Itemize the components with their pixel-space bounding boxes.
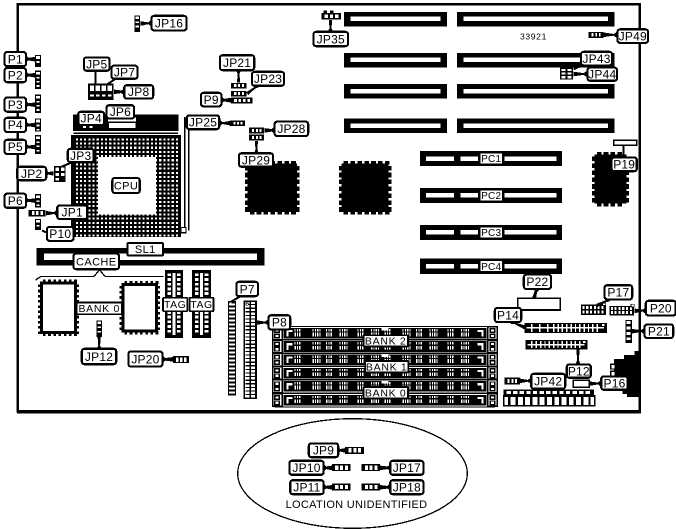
svg-text:JP21: JP21	[223, 56, 251, 70]
svg-text:TAG: TAG	[190, 299, 212, 311]
svg-text:P6: P6	[8, 194, 23, 208]
svg-text:P14: P14	[497, 308, 519, 322]
svg-text:PC1: PC1	[481, 154, 501, 165]
svg-text:JP10: JP10	[292, 461, 320, 475]
svg-text:LOCATION UNIDENTIFIED: LOCATION UNIDENTIFIED	[286, 499, 428, 511]
svg-text:JP43: JP43	[582, 52, 610, 66]
svg-text:P9: P9	[204, 93, 219, 107]
svg-text:JP5: JP5	[86, 57, 107, 71]
svg-text:JP2: JP2	[21, 167, 42, 181]
svg-text:JP35: JP35	[317, 32, 345, 46]
svg-text:JP29: JP29	[242, 153, 270, 167]
svg-text:JP3: JP3	[70, 149, 91, 163]
svg-text:P8: P8	[272, 316, 287, 330]
svg-text:JP9: JP9	[313, 444, 334, 458]
svg-text:JP7: JP7	[114, 66, 135, 80]
svg-text:P7: P7	[240, 282, 255, 296]
svg-text:P2: P2	[8, 68, 23, 82]
svg-text:JP20: JP20	[131, 352, 159, 366]
svg-text:JP6: JP6	[110, 105, 131, 119]
svg-text:P5: P5	[8, 140, 23, 154]
svg-text:P4: P4	[8, 118, 23, 132]
svg-text:CACHE: CACHE	[76, 256, 117, 268]
svg-text:P19: P19	[613, 158, 635, 172]
svg-text:TAG: TAG	[164, 299, 186, 311]
svg-text:JP16: JP16	[155, 16, 183, 30]
svg-text:P12: P12	[568, 364, 590, 378]
svg-text:JP4: JP4	[81, 112, 102, 126]
svg-text:P10: P10	[49, 227, 71, 241]
svg-text:JP1: JP1	[62, 206, 83, 220]
svg-text:JP12: JP12	[85, 350, 113, 364]
svg-text:JP17: JP17	[393, 461, 421, 475]
svg-text:P22: P22	[526, 275, 548, 289]
svg-text:BANK 2: BANK 2	[365, 335, 407, 347]
svg-text:PC4: PC4	[481, 262, 501, 273]
svg-text:P21: P21	[648, 325, 670, 339]
svg-text:JP44: JP44	[588, 68, 616, 82]
svg-text:JP8: JP8	[128, 85, 149, 99]
svg-text:PC3: PC3	[481, 228, 501, 239]
svg-text:BANK 0: BANK 0	[78, 303, 120, 315]
svg-text:BANK 0: BANK 0	[365, 387, 407, 399]
svg-text:P20: P20	[650, 301, 672, 315]
svg-text:P3: P3	[8, 98, 23, 112]
svg-text:P16: P16	[604, 376, 626, 390]
svg-text:JP28: JP28	[277, 122, 305, 136]
svg-text:CPU: CPU	[114, 180, 138, 192]
svg-text:PC2: PC2	[481, 191, 501, 202]
svg-text:JP11: JP11	[293, 481, 320, 495]
svg-text:JP23: JP23	[254, 72, 282, 86]
svg-text:JP49: JP49	[619, 29, 647, 43]
svg-text:JP18: JP18	[393, 481, 421, 495]
svg-text:P1: P1	[8, 52, 23, 66]
svg-text:P17: P17	[607, 286, 629, 300]
svg-text:SL1: SL1	[135, 244, 156, 256]
svg-text:BANK 1: BANK 1	[366, 361, 408, 373]
svg-text:33921: 33921	[520, 32, 547, 42]
svg-text:JP25: JP25	[189, 116, 217, 130]
svg-text:JP42: JP42	[534, 375, 562, 389]
